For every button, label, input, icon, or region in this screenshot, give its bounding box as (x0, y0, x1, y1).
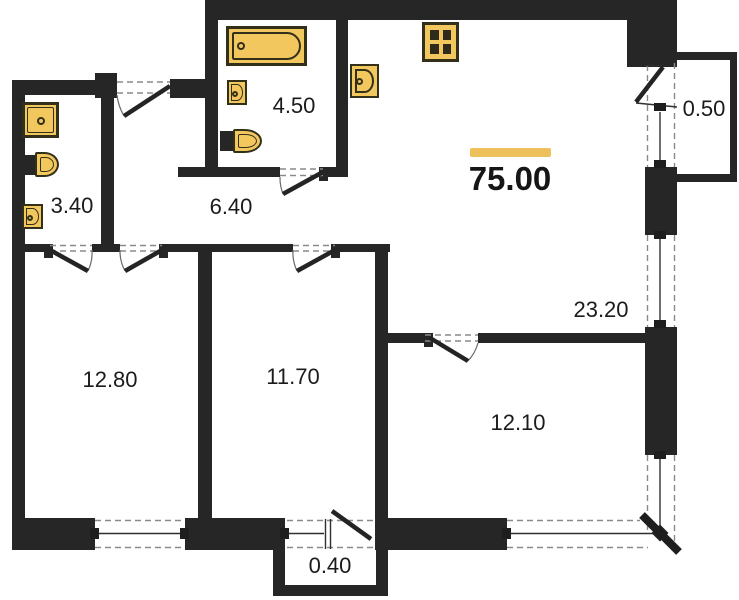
room-area-room-right: 12.10 (490, 410, 545, 436)
wall-segment (478, 333, 645, 343)
room-area-balcony-bottom: 0.40 (309, 553, 352, 579)
wall-segment (12, 518, 95, 550)
toilet-tank (25, 155, 35, 175)
total-area-label: 75.00 (469, 160, 552, 198)
balcony-wall (273, 585, 388, 596)
balcony-wall (677, 174, 737, 182)
wall-segment (205, 0, 650, 20)
room-area-bedroom-left: 12.80 (82, 367, 137, 393)
bathtub-icon (226, 26, 307, 66)
wall-segment (375, 518, 507, 550)
door-hinge (424, 333, 433, 347)
wall-segment (162, 244, 293, 252)
room-area-bathroom-main: 4.50 (273, 93, 316, 119)
faucet-dot (27, 215, 33, 221)
door-hinge (319, 167, 328, 181)
washing-machine-door (37, 117, 45, 125)
washing-machine-icon (22, 102, 59, 138)
faucet-dot (232, 91, 238, 97)
toilet-icon (233, 129, 262, 153)
total-area-accent-bar (470, 148, 551, 157)
wall-segment (645, 327, 677, 455)
room-area-hallway: 6.40 (210, 194, 253, 220)
wall-segment (205, 0, 218, 175)
wall-segment (627, 0, 677, 67)
toilet-bowl-inner (40, 157, 54, 172)
wall-segment (645, 167, 677, 235)
stove-burners (428, 28, 453, 56)
balcony-wall (730, 52, 737, 182)
wall-segment (388, 333, 425, 343)
door-hinge (44, 244, 53, 258)
bathroom-sink-icon (22, 204, 43, 229)
room-area-bedroom-middle: 11.70 (266, 364, 319, 390)
wall-segment (375, 252, 388, 518)
toilet-tank (220, 131, 233, 151)
wall-segment (336, 13, 348, 177)
wall-segment (92, 244, 120, 252)
door-hinge (159, 244, 168, 258)
balcony-wall (677, 52, 737, 60)
balcony-wall (376, 548, 388, 596)
faucet-dot (356, 78, 363, 85)
bathtub-drain (237, 42, 245, 50)
wall-segment (198, 252, 212, 518)
wall-segment (12, 80, 25, 550)
room-area-bathroom-small: 3.40 (51, 193, 94, 219)
toilet-icon (35, 152, 59, 177)
wall-segment (170, 79, 205, 98)
wall-segment (101, 80, 114, 252)
floor-plan: 75.00 3.40 6.40 4.50 0.50 23.20 12.80 11… (0, 0, 739, 600)
wall-segment (178, 167, 280, 177)
wall-segment (185, 518, 285, 550)
kitchen-sink-icon (350, 64, 379, 98)
toilet-bowl-inner (238, 134, 257, 148)
bathroom-sink-icon (227, 80, 247, 105)
room-area-balcony-right: 0.50 (683, 96, 726, 122)
wall-segment (335, 244, 390, 252)
room-area-kitchen-living: 23.20 (573, 297, 628, 323)
door-hinge (331, 244, 340, 258)
stove-icon (422, 22, 459, 62)
